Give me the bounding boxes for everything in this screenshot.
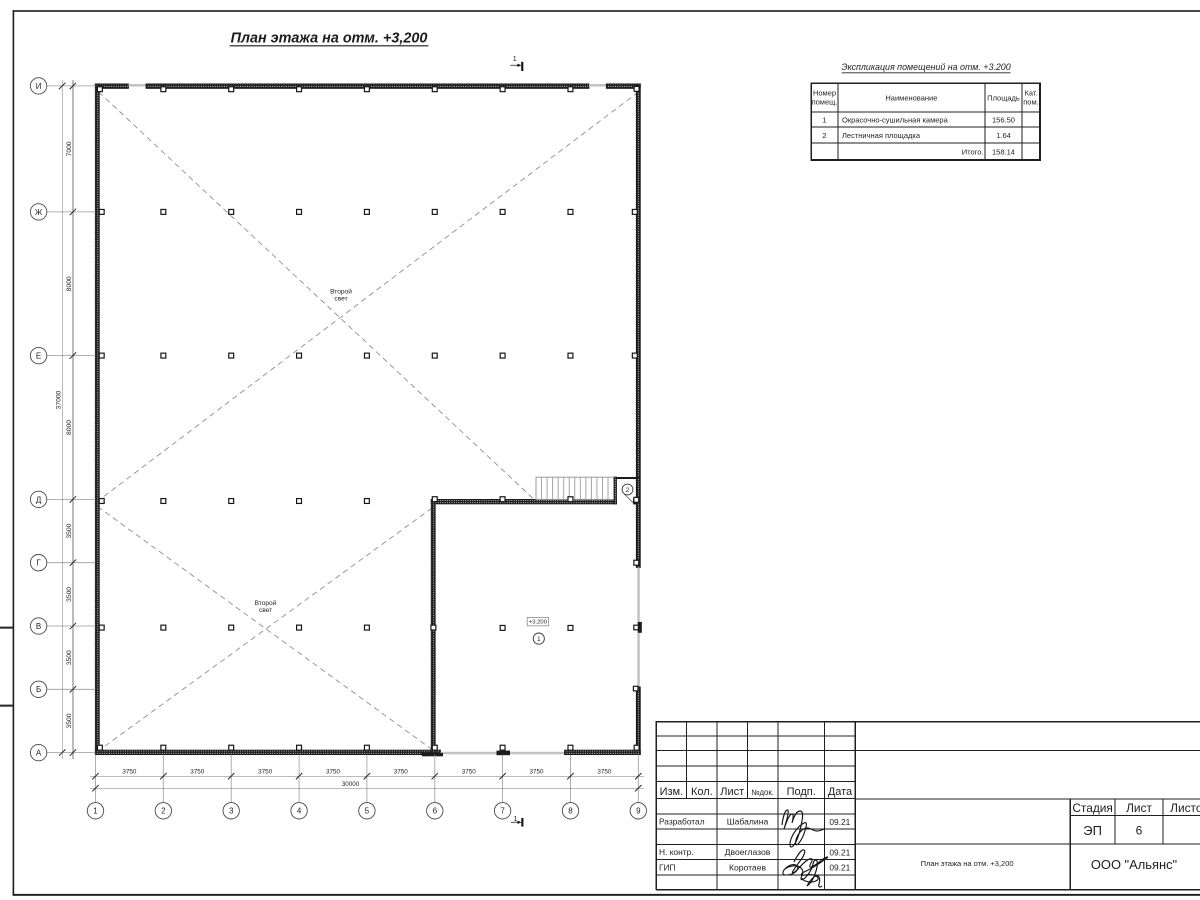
svg-text:156.50: 156.50 <box>992 115 1015 124</box>
svg-text:Лист: Лист <box>1126 801 1152 815</box>
svg-text:ГИП: ГИП <box>659 862 676 872</box>
svg-text:Наименование: Наименование <box>885 94 937 103</box>
svg-text:158.14: 158.14 <box>992 147 1015 156</box>
svg-text:Коротаев: Коротаев <box>729 862 767 872</box>
svg-text:Номер: Номер <box>813 89 836 98</box>
svg-text:свет: свет <box>334 295 347 302</box>
svg-text:1: 1 <box>514 814 518 823</box>
svg-text:3750: 3750 <box>462 769 477 776</box>
svg-text:3500: 3500 <box>66 587 73 602</box>
svg-text:1.64: 1.64 <box>996 131 1011 140</box>
svg-text:1: 1 <box>537 636 541 643</box>
svg-text:3750: 3750 <box>394 769 409 776</box>
svg-text:ЭП: ЭП <box>1083 823 1102 838</box>
svg-text:Второй: Второй <box>330 287 352 295</box>
svg-text:3: 3 <box>229 807 234 816</box>
svg-text:09.21: 09.21 <box>829 817 850 827</box>
svg-text:Листов: Листов <box>1170 801 1200 815</box>
svg-text:3500: 3500 <box>66 523 73 538</box>
svg-text:Б: Б <box>36 685 41 694</box>
svg-text:3750: 3750 <box>122 769 137 776</box>
svg-text:5: 5 <box>365 807 370 816</box>
svg-text:8000: 8000 <box>66 420 73 435</box>
svg-text:Итого.: Итого. <box>962 147 984 156</box>
svg-text:3750: 3750 <box>258 769 273 776</box>
svg-text:План этажа на отм. +3,200: План этажа на отм. +3,200 <box>231 31 428 47</box>
svg-text:Подп.: Подп. <box>787 786 816 798</box>
svg-text:3500: 3500 <box>66 713 73 728</box>
svg-text:Шабалина: Шабалина <box>727 816 769 826</box>
svg-text:09.21: 09.21 <box>829 847 850 857</box>
svg-text:1: 1 <box>93 807 98 816</box>
svg-text:№док.: №док. <box>751 788 774 797</box>
svg-text:Д: Д <box>36 495 42 504</box>
svg-text:Дата: Дата <box>828 786 853 798</box>
svg-text:Изм.: Изм. <box>660 786 684 798</box>
svg-text:37000: 37000 <box>56 390 63 409</box>
svg-text:помещ.: помещ. <box>812 98 838 107</box>
svg-text:7: 7 <box>500 807 505 816</box>
svg-text:3750: 3750 <box>190 769 205 776</box>
svg-text:В: В <box>36 622 41 631</box>
svg-text:Окрасочно-сушильная камера: Окрасочно-сушильная камера <box>842 115 949 124</box>
svg-text:пом.: пом. <box>1023 98 1038 107</box>
svg-text:3750: 3750 <box>597 769 612 776</box>
svg-text:ООО "Альянс": ООО "Альянс" <box>1091 857 1178 872</box>
svg-text:2: 2 <box>822 131 826 140</box>
svg-text:6: 6 <box>1136 824 1143 838</box>
svg-text:30000: 30000 <box>342 781 360 788</box>
svg-text:Второй: Второй <box>255 599 277 607</box>
svg-text:9: 9 <box>636 807 641 816</box>
svg-text:3500: 3500 <box>66 650 73 665</box>
svg-text:Ж: Ж <box>35 208 43 217</box>
svg-text:1: 1 <box>513 54 517 63</box>
svg-text:09.21: 09.21 <box>829 863 850 873</box>
svg-text:Двоеглазов: Двоеглазов <box>725 847 771 857</box>
svg-text:Площадь: Площадь <box>987 94 1020 103</box>
svg-text:7000: 7000 <box>66 141 73 156</box>
svg-text:6: 6 <box>433 807 438 816</box>
svg-text:3750: 3750 <box>326 769 341 776</box>
svg-text:+3.200: +3.200 <box>529 620 548 626</box>
svg-text:Разработал: Разработал <box>659 816 705 826</box>
svg-text:Экспликация помещений на отм.: Экспликация помещений на отм. +3.200 <box>841 62 1010 72</box>
svg-text:8000: 8000 <box>66 276 73 291</box>
svg-text:4: 4 <box>297 807 302 816</box>
svg-text:Кол.: Кол. <box>691 786 713 798</box>
svg-text:Лист: Лист <box>720 786 744 798</box>
svg-text:Г: Г <box>36 559 41 568</box>
svg-text:3750: 3750 <box>529 769 544 776</box>
svg-text:2: 2 <box>161 807 166 816</box>
svg-text:свет: свет <box>259 607 272 614</box>
svg-text:2: 2 <box>626 487 630 494</box>
svg-text:Кат.: Кат. <box>1024 89 1037 98</box>
svg-text:Стадия: Стадия <box>1072 801 1113 815</box>
svg-text:8: 8 <box>568 807 573 816</box>
svg-text:А: А <box>36 749 42 758</box>
svg-text:И: И <box>36 82 42 91</box>
svg-text:План этажа на отм. +3,200: План этажа на отм. +3,200 <box>921 859 1014 868</box>
svg-text:Е: Е <box>36 352 41 361</box>
svg-text:1: 1 <box>822 115 826 124</box>
svg-text:Н. контр.: Н. контр. <box>659 847 694 857</box>
svg-text:Лестничная площадка: Лестничная площадка <box>842 131 921 140</box>
